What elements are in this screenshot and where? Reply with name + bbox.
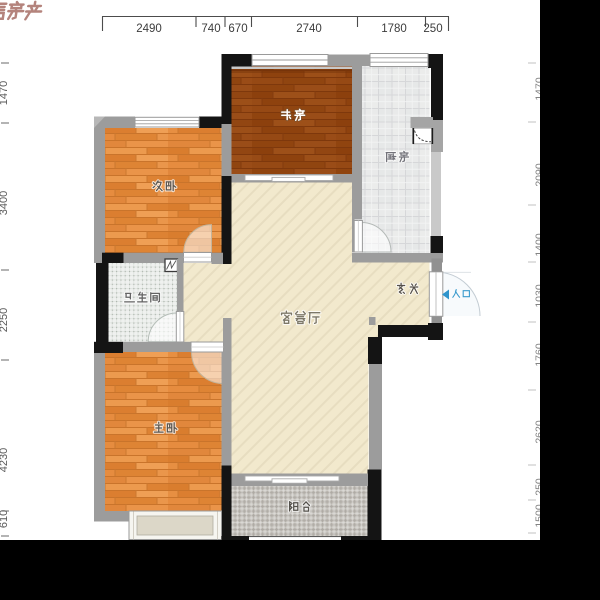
svg-text:670: 670 [228,23,247,35]
svg-text:2490: 2490 [136,23,162,35]
svg-text:740: 740 [201,23,220,35]
svg-text:3400: 3400 [0,191,10,215]
svg-text:1780: 1780 [381,23,407,35]
svg-text:1470: 1470 [0,81,10,105]
svg-text:2740: 2740 [296,23,322,35]
svg-text:4230: 4230 [0,448,10,472]
svg-text:250: 250 [423,23,442,35]
svg-text:610: 610 [0,510,10,528]
svg-text:2250: 2250 [0,308,10,332]
